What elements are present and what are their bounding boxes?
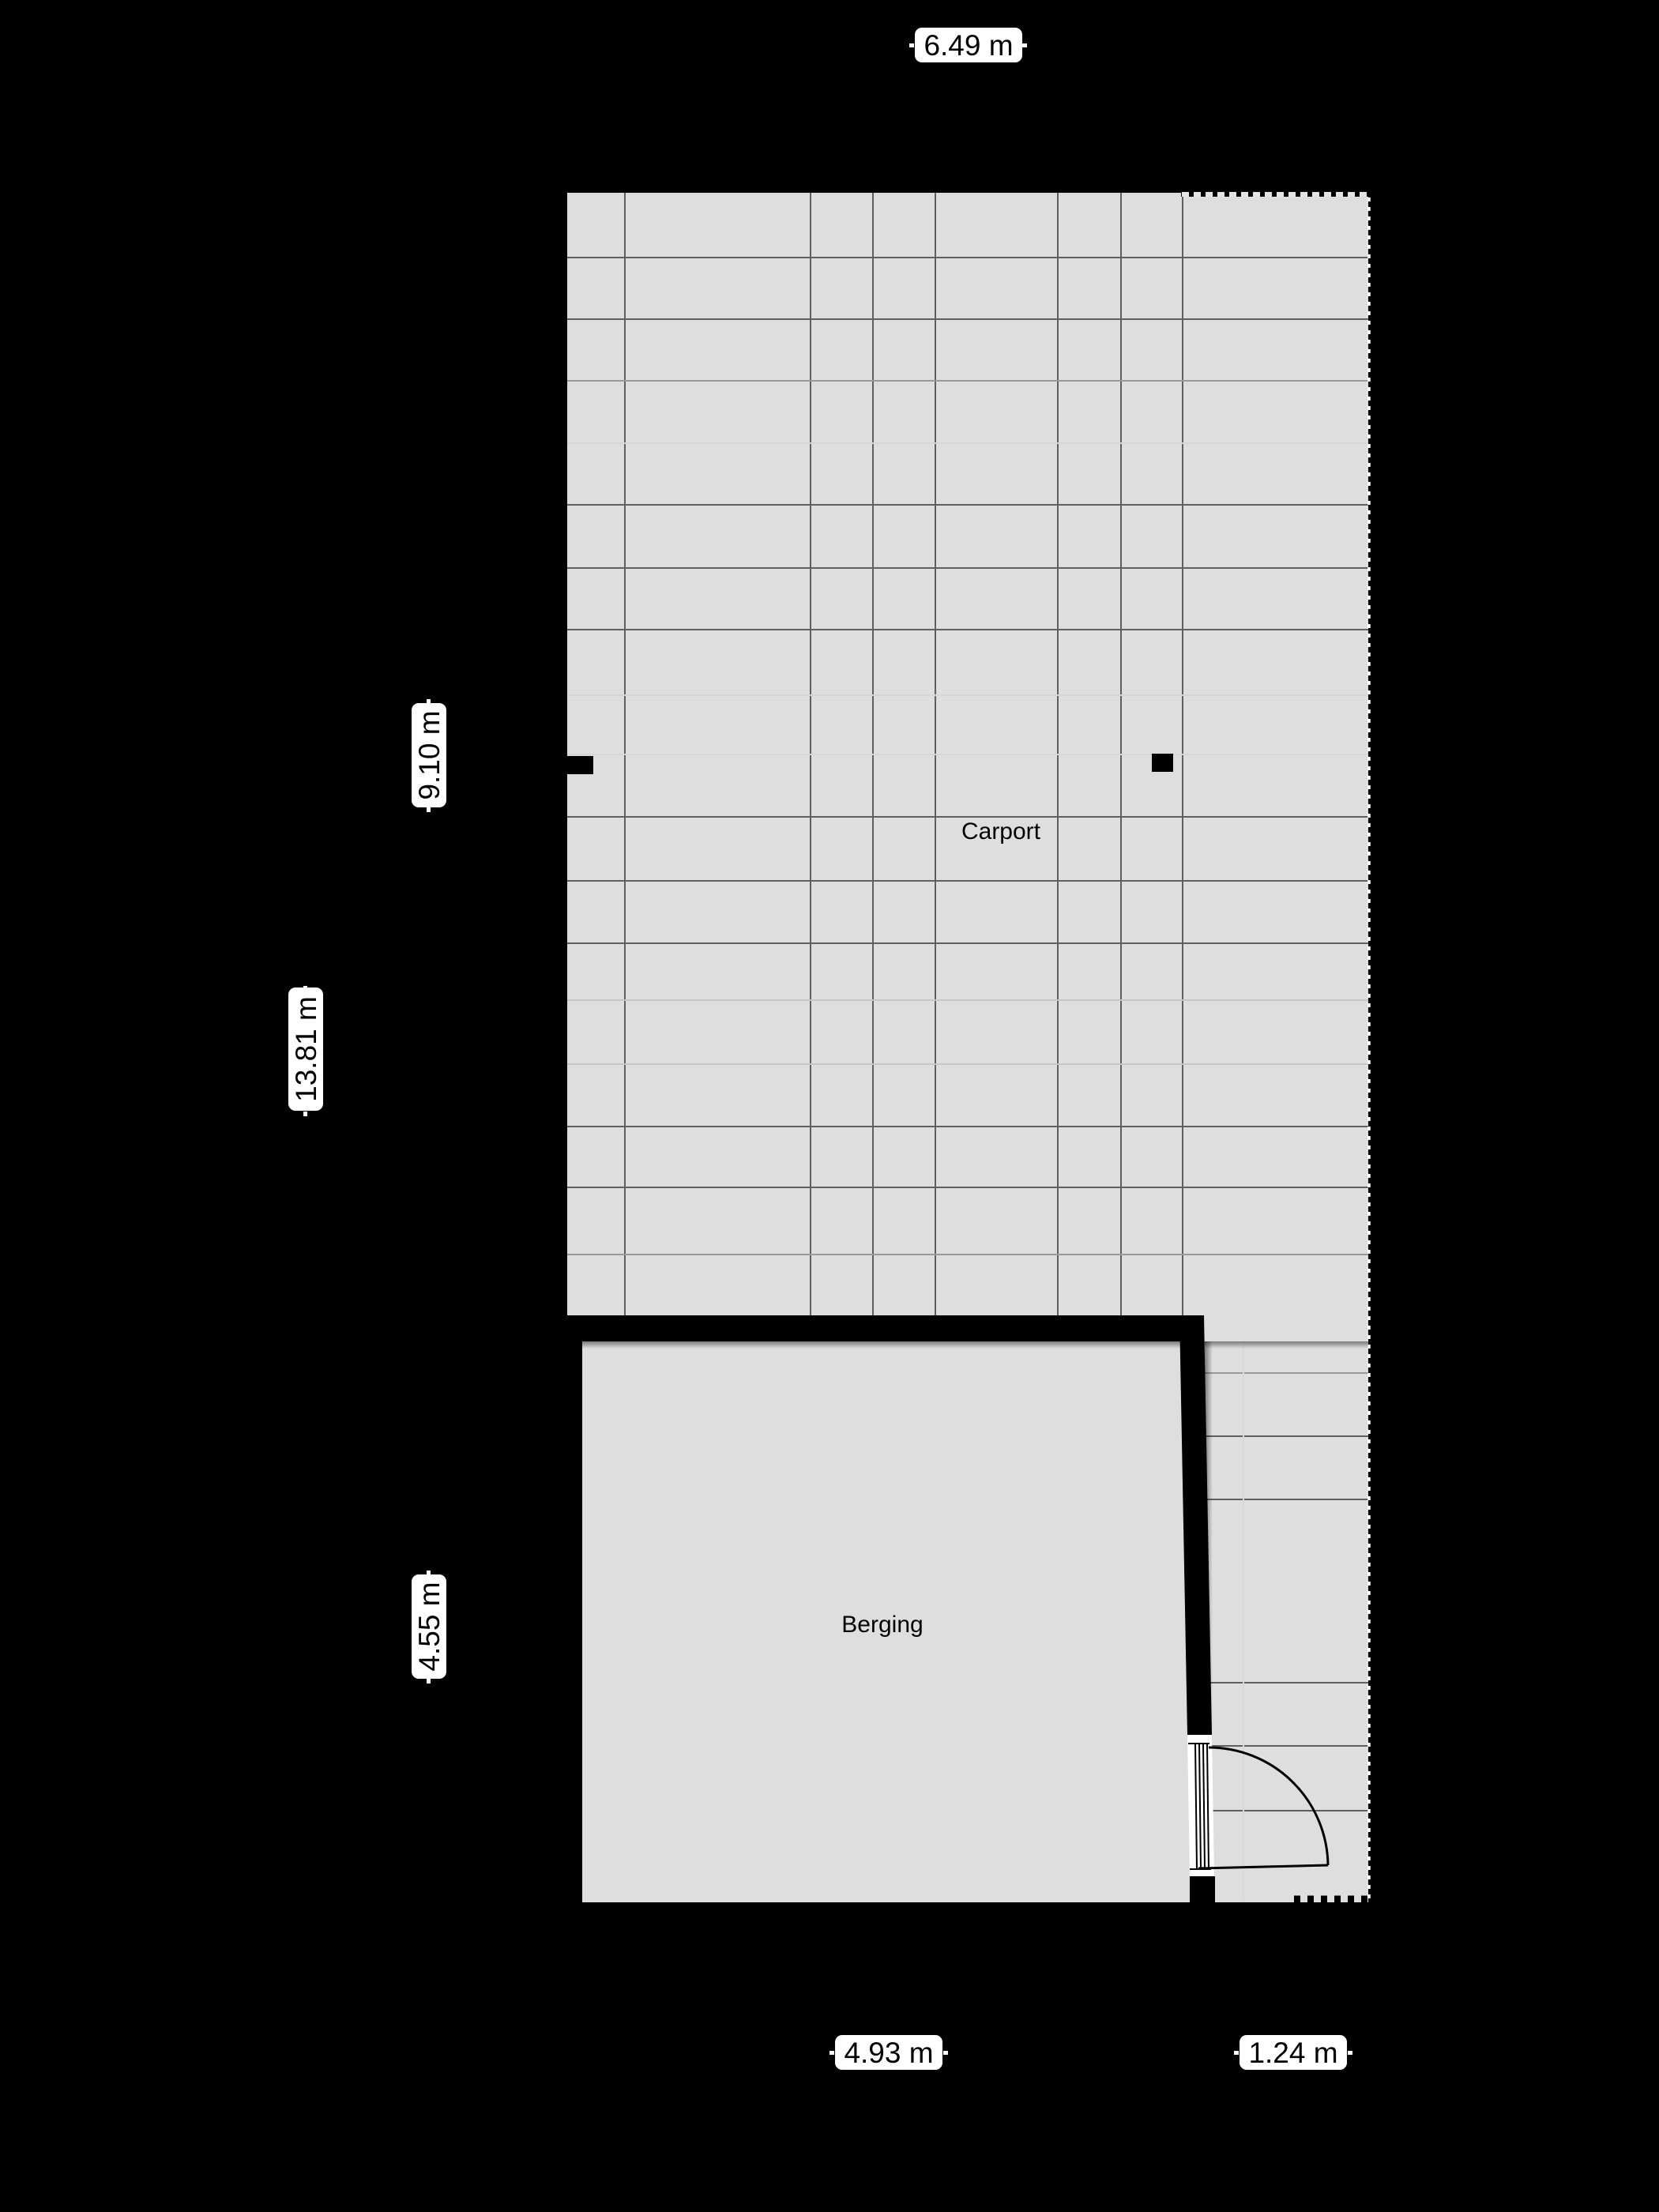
svg-text:4.55 m: 4.55 m (413, 1582, 446, 1671)
svg-text:1.24 m: 1.24 m (1248, 2037, 1337, 2069)
svg-text:Berging: Berging (841, 1612, 923, 1638)
svg-text:6.49 m: 6.49 m (924, 29, 1013, 62)
svg-text:4.93 m: 4.93 m (844, 2037, 933, 2069)
svg-text:13.81 m: 13.81 m (290, 996, 322, 1102)
svg-text:Carport: Carport (961, 818, 1041, 845)
svg-text:9.10 m: 9.10 m (413, 710, 446, 799)
